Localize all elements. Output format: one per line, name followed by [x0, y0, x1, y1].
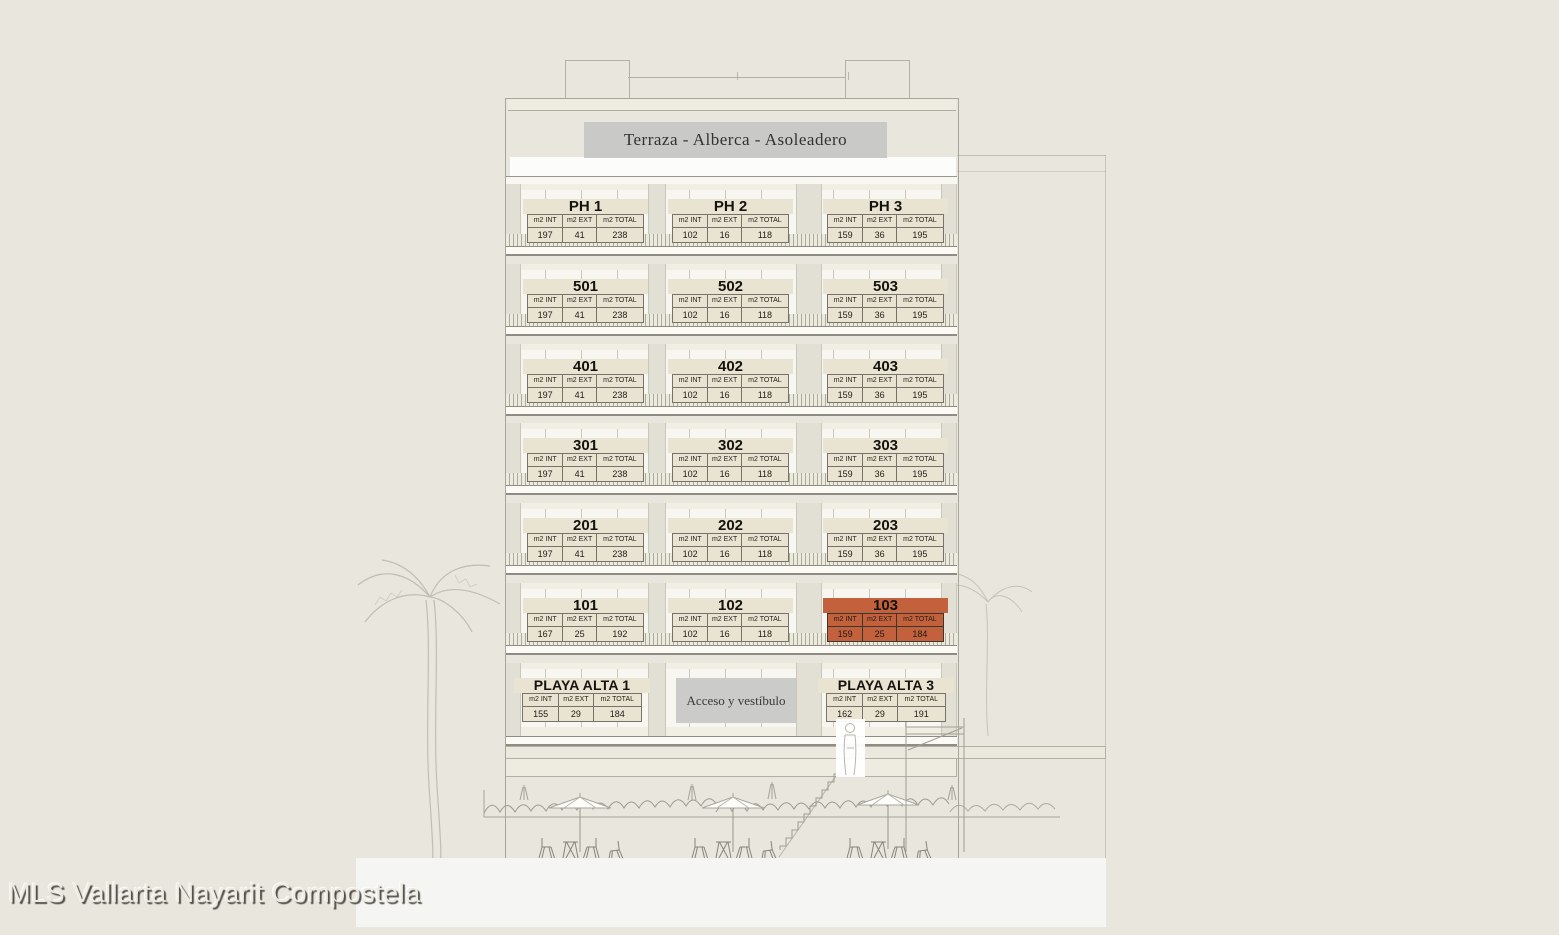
- area-value-int: 102: [673, 228, 707, 242]
- area-value-total: 118: [742, 627, 788, 641]
- unit-area-table: m2 INT m2 EXT m2 TOTAL 102 16 118: [672, 613, 789, 642]
- area-header-int: m2 INT: [828, 534, 862, 546]
- area-value-total: 195: [897, 308, 943, 322]
- area-value-int: 197: [528, 228, 562, 242]
- area-value-int: 167: [528, 627, 562, 641]
- floor-slab: [505, 246, 957, 256]
- area-value-total: 195: [897, 547, 943, 561]
- area-value-ext: 36: [863, 228, 895, 242]
- area-header-total: m2 TOTAL: [897, 215, 943, 227]
- unit-number: 101: [523, 598, 648, 613]
- floor-slab: [505, 736, 957, 746]
- area-value-int: 159: [828, 627, 862, 641]
- area-header-total: m2 TOTAL: [594, 694, 641, 706]
- area-value-total: 195: [897, 228, 943, 242]
- unit-card[interactable]: PH 3 m2 INT m2 EXT m2 TOTAL 159 36 195: [823, 199, 948, 243]
- area-value-total: 192: [597, 627, 643, 641]
- unit-number: 303: [823, 438, 948, 453]
- area-value-int: 162: [827, 707, 862, 721]
- unit-area-table: m2 INT m2 EXT m2 TOTAL 197 41 238: [527, 294, 644, 323]
- area-header-int: m2 INT: [673, 454, 707, 466]
- area-header-total: m2 TOTAL: [597, 215, 643, 227]
- area-value-total: 118: [742, 467, 788, 481]
- area-value-total: 238: [597, 308, 643, 322]
- area-header-total: m2 TOTAL: [742, 614, 788, 626]
- area-value-ext: 16: [708, 547, 740, 561]
- unit-card[interactable]: 301 m2 INT m2 EXT m2 TOTAL 197 41 238: [523, 438, 648, 482]
- floor-slab: [505, 406, 957, 416]
- unit-card[interactable]: 103 m2 INT m2 EXT m2 TOTAL 159 25 184: [823, 598, 948, 642]
- structural-column: [648, 663, 666, 736]
- unit-area-table: m2 INT m2 EXT m2 TOTAL 159 36 195: [827, 374, 944, 403]
- unit-number: PH 3: [823, 199, 948, 214]
- area-header-int: m2 INT: [673, 295, 707, 307]
- area-value-int: 159: [828, 308, 862, 322]
- area-value-ext: 41: [563, 388, 595, 402]
- area-value-total: 238: [597, 388, 643, 402]
- unit-card[interactable]: 202 m2 INT m2 EXT m2 TOTAL 102 16 118: [668, 518, 793, 562]
- unit-area-table: m2 INT m2 EXT m2 TOTAL 102 16 118: [672, 374, 789, 403]
- area-header-int: m2 INT: [528, 375, 562, 387]
- area-header-int: m2 INT: [828, 375, 862, 387]
- unit-area-table: m2 INT m2 EXT m2 TOTAL 159 36 195: [827, 453, 944, 482]
- area-header-int: m2 INT: [827, 694, 862, 706]
- area-header-ext: m2 EXT: [863, 534, 895, 546]
- unit-card[interactable]: 302 m2 INT m2 EXT m2 TOTAL 102 16 118: [668, 438, 793, 482]
- area-value-ext: 16: [708, 467, 740, 481]
- area-header-ext: m2 EXT: [863, 454, 895, 466]
- unit-number: 402: [668, 359, 793, 374]
- unit-area-table: m2 INT m2 EXT m2 TOTAL 102 16 118: [672, 294, 789, 323]
- unit-area-table: m2 INT m2 EXT m2 TOTAL 197 41 238: [527, 374, 644, 403]
- area-value-ext: 36: [863, 467, 895, 481]
- area-header-total: m2 TOTAL: [897, 375, 943, 387]
- area-value-ext: 36: [863, 308, 895, 322]
- area-value-int: 102: [673, 547, 707, 561]
- area-value-int: 197: [528, 547, 562, 561]
- unit-number: 502: [668, 279, 793, 294]
- unit-card[interactable]: 101 m2 INT m2 EXT m2 TOTAL 167 25 192: [523, 598, 648, 642]
- area-value-total: 184: [897, 627, 943, 641]
- unit-card[interactable]: PLAYA ALTA 3 m2 INT m2 EXT m2 TOTAL 162 …: [818, 678, 954, 722]
- area-header-int: m2 INT: [528, 534, 562, 546]
- area-header-ext: m2 EXT: [563, 215, 595, 227]
- area-header-ext: m2 EXT: [708, 375, 740, 387]
- area-header-total: m2 TOTAL: [742, 534, 788, 546]
- unit-card[interactable]: 303 m2 INT m2 EXT m2 TOTAL 159 36 195: [823, 438, 948, 482]
- building-elevation-diagram: Terraza - Alberca - Asoleadero PH 1 m2 I…: [0, 0, 1559, 935]
- area-header-ext: m2 EXT: [563, 375, 595, 387]
- floors-layer: PH 1 m2 INT m2 EXT m2 TOTAL 197 41 238 P…: [0, 0, 1559, 935]
- area-header-int: m2 INT: [528, 614, 562, 626]
- floor-slab: [505, 645, 957, 655]
- area-header-ext: m2 EXT: [863, 295, 895, 307]
- area-header-ext: m2 EXT: [863, 694, 896, 706]
- area-value-total: 191: [898, 707, 945, 721]
- area-value-ext: 25: [863, 627, 895, 641]
- floor-row-3: 301 m2 INT m2 EXT m2 TOTAL 197 41 238 30…: [505, 423, 957, 503]
- lobby-box: Acceso y vestíbulo: [676, 678, 796, 723]
- floor-row-PH: PH 1 m2 INT m2 EXT m2 TOTAL 197 41 238 P…: [505, 184, 957, 264]
- area-header-total: m2 TOTAL: [897, 534, 943, 546]
- area-header-ext: m2 EXT: [708, 614, 740, 626]
- area-value-int: 102: [673, 467, 707, 481]
- floor-slab: [505, 326, 957, 336]
- area-value-total: 118: [742, 547, 788, 561]
- unit-area-table: m2 INT m2 EXT m2 TOTAL 167 25 192: [527, 613, 644, 642]
- unit-area-table: m2 INT m2 EXT m2 TOTAL 159 36 195: [827, 294, 944, 323]
- area-header-int: m2 INT: [673, 534, 707, 546]
- area-header-int: m2 INT: [528, 295, 562, 307]
- area-value-total: 118: [742, 308, 788, 322]
- area-header-total: m2 TOTAL: [597, 375, 643, 387]
- area-value-int: 197: [528, 308, 562, 322]
- area-value-ext: 16: [708, 627, 740, 641]
- area-value-int: 197: [528, 388, 562, 402]
- unit-card[interactable]: PLAYA ALTA 1 m2 INT m2 EXT m2 TOTAL 155 …: [514, 678, 650, 722]
- unit-card[interactable]: 401 m2 INT m2 EXT m2 TOTAL 197 41 238: [523, 359, 648, 403]
- unit-card[interactable]: PH 2 m2 INT m2 EXT m2 TOTAL 102 16 118: [668, 199, 793, 243]
- floor-slab: [505, 565, 957, 575]
- floor-row-5: 501 m2 INT m2 EXT m2 TOTAL 197 41 238 50…: [505, 264, 957, 344]
- unit-card[interactable]: 203 m2 INT m2 EXT m2 TOTAL 159 36 195: [823, 518, 948, 562]
- area-value-ext: 16: [708, 228, 740, 242]
- unit-number: 401: [523, 359, 648, 374]
- area-value-ext: 41: [563, 547, 595, 561]
- area-header-int: m2 INT: [673, 215, 707, 227]
- area-header-int: m2 INT: [828, 295, 862, 307]
- area-header-ext: m2 EXT: [708, 534, 740, 546]
- area-header-ext: m2 EXT: [563, 295, 595, 307]
- area-value-total: 195: [897, 467, 943, 481]
- lobby-label: Acceso y vestíbulo: [687, 693, 786, 709]
- unit-number: 302: [668, 438, 793, 453]
- area-value-total: 195: [897, 388, 943, 402]
- area-header-total: m2 TOTAL: [897, 295, 943, 307]
- area-header-int: m2 INT: [828, 215, 862, 227]
- area-value-total: 238: [597, 547, 643, 561]
- area-value-int: 159: [828, 547, 862, 561]
- area-header-total: m2 TOTAL: [897, 614, 943, 626]
- area-value-int: 102: [673, 388, 707, 402]
- area-header-ext: m2 EXT: [863, 375, 895, 387]
- area-value-ext: 36: [863, 388, 895, 402]
- area-value-ext: 25: [563, 627, 595, 641]
- unit-area-table: m2 INT m2 EXT m2 TOTAL 159 25 184: [827, 613, 944, 642]
- area-header-total: m2 TOTAL: [897, 454, 943, 466]
- unit-number: 503: [823, 279, 948, 294]
- unit-area-table: m2 INT m2 EXT m2 TOTAL 162 29 191: [826, 693, 946, 722]
- area-header-ext: m2 EXT: [863, 215, 895, 227]
- area-value-total: 118: [742, 388, 788, 402]
- unit-number: 403: [823, 359, 948, 374]
- area-value-total: 118: [742, 228, 788, 242]
- area-header-ext: m2 EXT: [863, 614, 895, 626]
- area-header-int: m2 INT: [528, 215, 562, 227]
- unit-card[interactable]: 501 m2 INT m2 EXT m2 TOTAL 197 41 238: [523, 279, 648, 323]
- area-value-int: 159: [828, 228, 862, 242]
- unit-number: PLAYA ALTA 3: [818, 678, 954, 693]
- unit-area-table: m2 INT m2 EXT m2 TOTAL 102 16 118: [672, 453, 789, 482]
- unit-area-table: m2 INT m2 EXT m2 TOTAL 155 29 184: [522, 693, 642, 722]
- area-header-ext: m2 EXT: [563, 614, 595, 626]
- unit-area-table: m2 INT m2 EXT m2 TOTAL 159 36 195: [827, 533, 944, 562]
- unit-card[interactable]: 402 m2 INT m2 EXT m2 TOTAL 102 16 118: [668, 359, 793, 403]
- unit-number: PH 2: [668, 199, 793, 214]
- unit-area-table: m2 INT m2 EXT m2 TOTAL 159 36 195: [827, 214, 944, 243]
- unit-area-table: m2 INT m2 EXT m2 TOTAL 197 41 238: [527, 533, 644, 562]
- area-header-total: m2 TOTAL: [597, 614, 643, 626]
- area-header-total: m2 TOTAL: [597, 534, 643, 546]
- area-value-total: 238: [597, 228, 643, 242]
- floor-slab: [505, 485, 957, 495]
- floor-row-1: 101 m2 INT m2 EXT m2 TOTAL 167 25 192 10…: [505, 583, 957, 663]
- area-value-int: 159: [828, 388, 862, 402]
- floor-row-2: 201 m2 INT m2 EXT m2 TOTAL 197 41 238 20…: [505, 503, 957, 583]
- area-value-ext: 29: [863, 707, 896, 721]
- unit-area-table: m2 INT m2 EXT m2 TOTAL 197 41 238: [527, 453, 644, 482]
- area-value-int: 102: [673, 627, 707, 641]
- area-value-total: 238: [597, 467, 643, 481]
- unit-card[interactable]: 502 m2 INT m2 EXT m2 TOTAL 102 16 118: [668, 279, 793, 323]
- area-value-ext: 16: [708, 308, 740, 322]
- unit-area-table: m2 INT m2 EXT m2 TOTAL 102 16 118: [672, 214, 789, 243]
- area-value-ext: 36: [863, 547, 895, 561]
- unit-card[interactable]: 503 m2 INT m2 EXT m2 TOTAL 159 36 195: [823, 279, 948, 323]
- area-header-int: m2 INT: [828, 454, 862, 466]
- area-value-ext: 41: [563, 308, 595, 322]
- area-header-ext: m2 EXT: [559, 694, 592, 706]
- area-header-int: m2 INT: [528, 454, 562, 466]
- watermark: MLS Vallarta Nayarit Compostela: [8, 878, 421, 909]
- footer-band: [356, 858, 1106, 927]
- area-header-int: m2 INT: [673, 375, 707, 387]
- area-header-int: m2 INT: [828, 614, 862, 626]
- area-header-ext: m2 EXT: [708, 454, 740, 466]
- area-header-int: m2 INT: [523, 694, 558, 706]
- area-header-total: m2 TOTAL: [597, 295, 643, 307]
- unit-number: 203: [823, 518, 948, 533]
- area-header-int: m2 INT: [673, 614, 707, 626]
- area-header-total: m2 TOTAL: [597, 454, 643, 466]
- area-value-total: 184: [594, 707, 641, 721]
- area-value-ext: 41: [563, 467, 595, 481]
- unit-area-table: m2 INT m2 EXT m2 TOTAL 102 16 118: [672, 533, 789, 562]
- unit-number: 202: [668, 518, 793, 533]
- area-header-ext: m2 EXT: [708, 295, 740, 307]
- area-value-int: 159: [828, 467, 862, 481]
- area-header-total: m2 TOTAL: [742, 215, 788, 227]
- area-value-int: 155: [523, 707, 558, 721]
- area-header-total: m2 TOTAL: [742, 375, 788, 387]
- unit-card[interactable]: 201 m2 INT m2 EXT m2 TOTAL 197 41 238: [523, 518, 648, 562]
- unit-card[interactable]: PH 1 m2 INT m2 EXT m2 TOTAL 197 41 238: [523, 199, 648, 243]
- area-header-total: m2 TOTAL: [898, 694, 945, 706]
- unit-area-table: m2 INT m2 EXT m2 TOTAL 197 41 238: [527, 214, 644, 243]
- unit-number: PLAYA ALTA 1: [514, 678, 650, 693]
- unit-number: 201: [523, 518, 648, 533]
- area-value-ext: 16: [708, 388, 740, 402]
- unit-number: 501: [523, 279, 648, 294]
- area-header-total: m2 TOTAL: [742, 295, 788, 307]
- unit-number: 103: [823, 598, 948, 613]
- unit-card[interactable]: 403 m2 INT m2 EXT m2 TOTAL 159 36 195: [823, 359, 948, 403]
- area-value-int: 197: [528, 467, 562, 481]
- unit-number: 102: [668, 598, 793, 613]
- area-header-ext: m2 EXT: [563, 534, 595, 546]
- unit-number: PH 1: [523, 199, 648, 214]
- area-header-ext: m2 EXT: [563, 454, 595, 466]
- unit-card[interactable]: 102 m2 INT m2 EXT m2 TOTAL 102 16 118: [668, 598, 793, 642]
- area-value-int: 102: [673, 308, 707, 322]
- unit-number: 301: [523, 438, 648, 453]
- area-value-ext: 41: [563, 228, 595, 242]
- area-value-ext: 29: [559, 707, 592, 721]
- area-header-total: m2 TOTAL: [742, 454, 788, 466]
- area-header-ext: m2 EXT: [708, 215, 740, 227]
- floor-row-4: 401 m2 INT m2 EXT m2 TOTAL 197 41 238 40…: [505, 344, 957, 424]
